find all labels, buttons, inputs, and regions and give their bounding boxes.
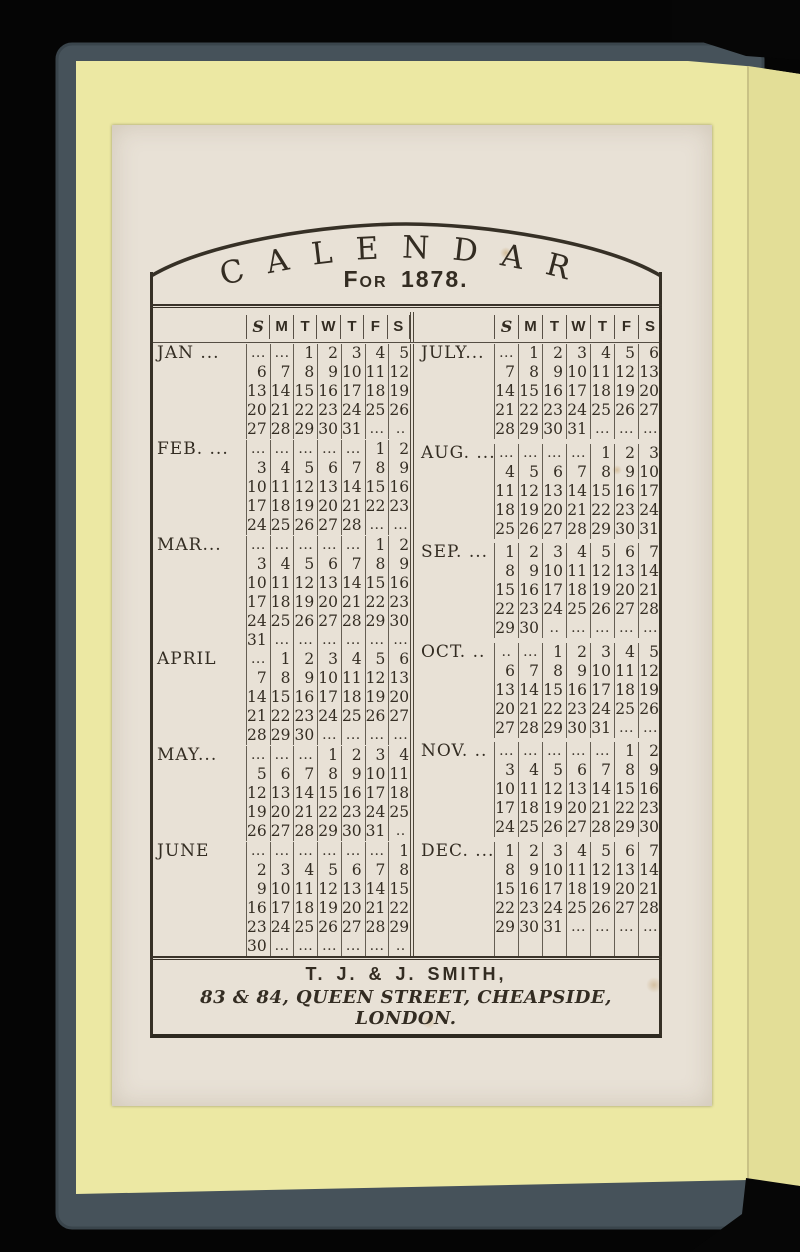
day-cell: 10 [590,662,614,681]
day-cell: 8 [494,562,518,581]
empty-day-cell: ... [590,619,614,638]
month-label-spacer [150,688,246,707]
photo-of-book-interior: CALENDAR For 1878. SMTWTFS SMTWTFS JAN .… [0,0,800,1252]
day-cell: 23 [293,707,317,726]
month-label-spacer [150,382,246,401]
day-cell: 30 [518,918,542,937]
day-cell: 31 [365,822,389,841]
day-cell: 7 [638,543,662,562]
month-block: DEC. ...12345678910111213141516171819202… [414,842,662,956]
day-cell: 29 [365,612,389,631]
day-cell: 1 [494,842,518,861]
day-cell: 8 [388,861,412,880]
day-cell: 20 [614,880,638,899]
day-cell: 6 [614,543,638,562]
day-cell: 16 [341,784,365,803]
day-cell: 22 [365,497,389,516]
empty-day-cell: ... [494,742,518,761]
day-cell: 6 [246,363,270,382]
day-cell: 26 [518,520,542,539]
day-cell: 6 [317,459,341,478]
day-cell: 13 [638,363,662,382]
month-label: MAR... [150,536,246,555]
day-cell: 23 [614,501,638,520]
day-cell: 16 [388,478,412,497]
month-label: FEB. ... [150,440,246,459]
day-cell: 10 [542,861,566,880]
months-column-right: JULY......123456789101112131415161718192… [414,344,662,956]
day-cell: 16 [518,581,542,600]
day-cell: 15 [494,581,518,600]
month-label-spacer [150,574,246,593]
day-cell: 24 [494,818,518,837]
day-cell: 26 [614,401,638,420]
empty-day-cell: .. [388,822,412,841]
empty-day-cell: ... [317,631,341,650]
card-subtitle: For 1878. [150,266,662,293]
day-cell: 1 [590,444,614,463]
blank-cell [590,937,614,956]
day-cell: 6 [638,344,662,363]
month-label-spacer [150,765,246,784]
dow-header-letter: M [518,315,542,339]
day-cell: 22 [270,707,294,726]
day-cell: 2 [246,861,270,880]
empty-day-cell: ... [270,746,294,765]
day-cell: 23 [518,600,542,619]
day-cell: 5 [293,459,317,478]
empty-day-cell: ... [614,420,638,439]
day-cell: 21 [246,707,270,726]
day-cell: 6 [494,662,518,681]
sunday-script-s: S [252,317,264,336]
endpaper-fore-edge [748,66,800,1186]
day-cell: 13 [494,681,518,700]
day-cell: 24 [270,918,294,937]
day-cell: 27 [246,420,270,439]
day-cell: 14 [518,681,542,700]
day-cell: 10 [494,780,518,799]
day-cell: 27 [270,822,294,841]
day-cell: 16 [518,880,542,899]
empty-day-cell: ... [270,536,294,555]
day-cell: 1 [614,742,638,761]
day-cell: 15 [317,784,341,803]
empty-day-cell: ... [614,619,638,638]
day-cell: 22 [494,600,518,619]
month-label: AUG. ... [414,444,494,463]
empty-day-cell: ... [341,842,365,861]
month-label-spacer [150,593,246,612]
day-cell: 29 [518,420,542,439]
empty-day-cell: ... [317,440,341,459]
day-cell: 13 [341,880,365,899]
dow-header-letter: T [590,315,614,339]
day-cell: 17 [317,688,341,707]
day-cell: 29 [317,822,341,841]
day-cell: 20 [614,581,638,600]
printer-imprint: T. J. & J. SMITH, 83 & 84, QUEEN STREET,… [150,964,662,1029]
day-cell: 10 [341,363,365,382]
day-cell: 14 [270,382,294,401]
day-cell: 5 [293,555,317,574]
empty-day-cell: ... [341,536,365,555]
day-cell: 25 [566,899,590,918]
month-label-spacer [414,880,494,899]
empty-day-cell: ... [388,631,412,650]
day-cell: 10 [542,562,566,581]
day-cell: 4 [270,555,294,574]
month-label-spacer [150,861,246,880]
day-cell: 15 [542,681,566,700]
empty-day-cell: ... [270,937,294,956]
month-label-spacer [150,880,246,899]
empty-day-cell: ... [590,742,614,761]
day-cell: 16 [614,482,638,501]
month-label-spacer [150,612,246,631]
day-cell: 7 [494,363,518,382]
month-label-spacer [150,803,246,822]
day-cell: 21 [638,880,662,899]
rule-above-footer [150,956,662,960]
dow-label-spacer [414,315,494,339]
month-label-spacer [150,822,246,841]
day-cell: 22 [542,700,566,719]
day-cell: 27 [614,899,638,918]
dow-header-letter: S [387,315,410,339]
day-cell: 29 [388,918,412,937]
day-cell: 19 [638,681,662,700]
month-label-spacer [150,363,246,382]
day-cell: 13 [614,861,638,880]
day-cell: 3 [246,459,270,478]
month-label-spacer [414,700,494,719]
empty-day-cell: ... [341,726,365,745]
day-cell: 26 [293,516,317,535]
day-cell: 16 [638,780,662,799]
month-label-spacer [414,401,494,420]
day-cell: 7 [341,459,365,478]
day-cell: 5 [518,463,542,482]
day-cell: 31 [566,420,590,439]
empty-day-cell: ... [246,650,270,669]
month-label-spacer [150,669,246,688]
day-cell: 15 [270,688,294,707]
day-cell: 28 [293,822,317,841]
empty-day-cell: ... [293,746,317,765]
day-cell: 28 [270,420,294,439]
month-label-spacer [150,497,246,516]
month-label-spacer [150,478,246,497]
day-cell: 23 [388,497,412,516]
day-cell: 17 [542,581,566,600]
dow-header-letter: M [269,315,292,339]
day-cell: 31 [341,420,365,439]
empty-day-cell: ... [590,918,614,937]
day-cell: 19 [614,382,638,401]
day-cell: 7 [518,662,542,681]
day-cell: 17 [494,799,518,818]
day-cell: 25 [566,600,590,619]
day-cell: 4 [293,861,317,880]
day-cell: 28 [494,420,518,439]
empty-day-cell: ... [542,742,566,761]
month-label-spacer [414,363,494,382]
empty-day-cell: ... [270,344,294,363]
dow-header-letter: T [542,315,566,339]
day-cell: 1 [317,746,341,765]
day-cell: 26 [590,600,614,619]
day-cell: 8 [317,765,341,784]
dow-header-letter: F [363,315,386,339]
day-cell: 3 [638,444,662,463]
day-cell: 17 [638,482,662,501]
day-cell: 23 [388,593,412,612]
day-cell: 14 [566,482,590,501]
day-cell: 30 [246,937,270,956]
day-cell: 12 [590,562,614,581]
empty-day-cell: .. [542,619,566,638]
day-cell: 20 [542,501,566,520]
day-cell: 21 [494,401,518,420]
day-cell: 14 [494,382,518,401]
month-label-spacer [414,899,494,918]
day-cell: 20 [388,688,412,707]
dow-header-letter: W [566,315,590,339]
day-of-week-header-row: SMTWTFS SMTWTFS [150,312,662,342]
month-label-spacer [414,619,494,638]
day-cell: 25 [518,818,542,837]
day-cell: 26 [542,818,566,837]
day-cell: 3 [566,344,590,363]
day-cell: 19 [590,880,614,899]
day-cell: 14 [365,880,389,899]
day-cell: 16 [293,688,317,707]
day-cell: 18 [341,688,365,707]
dow-header-letter: F [614,315,638,339]
day-cell: 9 [246,880,270,899]
day-cell: 1 [388,842,412,861]
empty-day-cell: ... [566,918,590,937]
day-cell: 28 [638,600,662,619]
day-cell: 31 [542,918,566,937]
empty-day-cell: ... [293,631,317,650]
day-cell: 22 [518,401,542,420]
day-cell: 23 [638,799,662,818]
month-label-spacer [414,482,494,501]
day-cell: 29 [270,726,294,745]
day-cell: 29 [590,520,614,539]
dow-header-left: SMTWTFS [150,312,414,342]
empty-day-cell: ... [246,746,270,765]
month-label-spacer [150,459,246,478]
blank-cell [566,937,590,956]
day-cell: 5 [388,344,412,363]
day-cell: 30 [388,612,412,631]
day-cell: 27 [388,707,412,726]
day-cell: 9 [614,463,638,482]
day-cell: 4 [566,842,590,861]
day-cell: 6 [566,761,590,780]
day-cell: 5 [590,543,614,562]
month-block: NOV. .................123456789101112131… [414,742,662,837]
day-cell: 18 [365,382,389,401]
day-cell: 28 [365,918,389,937]
day-cell: 24 [542,899,566,918]
day-cell: 13 [388,669,412,688]
day-cell: 19 [246,803,270,822]
day-cell: 19 [590,581,614,600]
day-cell: 17 [246,593,270,612]
day-cell: 20 [270,803,294,822]
empty-day-cell: ... [388,516,412,535]
empty-day-cell: .. [388,420,412,439]
day-cell: 21 [293,803,317,822]
day-cell: 30 [518,619,542,638]
day-cell: 15 [590,482,614,501]
day-cell: 28 [341,516,365,535]
day-cell: 9 [293,669,317,688]
day-cell: 25 [341,707,365,726]
day-cell: 12 [638,662,662,681]
day-cell: 2 [317,344,341,363]
day-cell: 27 [494,719,518,738]
day-cell: 2 [293,650,317,669]
empty-day-cell: ... [638,619,662,638]
day-cell: 7 [293,765,317,784]
empty-day-cell: ... [542,444,566,463]
day-cell: 11 [590,363,614,382]
day-cell: 20 [566,799,590,818]
months-table: JAN .........123456789101112131415161718… [150,344,662,956]
day-cell: 15 [365,574,389,593]
empty-day-cell: ... [638,420,662,439]
day-cell: 8 [293,363,317,382]
empty-day-cell: .. [388,937,412,956]
day-cell: 30 [293,726,317,745]
day-cell: 27 [566,818,590,837]
day-cell: 13 [317,478,341,497]
day-cell: 27 [317,612,341,631]
empty-day-cell: ... [341,440,365,459]
day-cell: 20 [638,382,662,401]
day-cell: 5 [365,650,389,669]
day-cell: 7 [566,463,590,482]
empty-day-cell: ... [566,742,590,761]
day-cell: 24 [246,516,270,535]
day-cell: 1 [518,344,542,363]
day-cell: 3 [494,761,518,780]
day-cell: 26 [365,707,389,726]
day-cell: 22 [293,401,317,420]
day-cell: 7 [638,842,662,861]
day-cell: 25 [270,516,294,535]
dow-header-letter: T [293,315,316,339]
day-cell: 11 [518,780,542,799]
day-cell: 27 [317,516,341,535]
day-cell: 2 [518,842,542,861]
day-cell: 19 [293,593,317,612]
month-label-spacer [414,520,494,539]
day-cell: 15 [388,880,412,899]
day-cell: 4 [494,463,518,482]
day-cell: 15 [365,478,389,497]
day-cell: 23 [317,401,341,420]
day-cell: 14 [638,861,662,880]
day-cell: 30 [542,420,566,439]
day-cell: 28 [638,899,662,918]
day-cell: 19 [542,799,566,818]
day-cell: 28 [246,726,270,745]
rule-under-headers [150,342,662,343]
day-cell: 2 [341,746,365,765]
day-cell: 31 [590,719,614,738]
day-cell: 22 [365,593,389,612]
day-cell: 28 [518,719,542,738]
day-cell: 18 [293,899,317,918]
day-cell: 22 [494,899,518,918]
day-cell: 1 [494,543,518,562]
month-label-spacer [150,516,246,535]
month-label-spacer [150,918,246,937]
empty-day-cell: ... [365,420,389,439]
month-label-spacer [150,784,246,803]
day-cell: 18 [270,497,294,516]
day-cell: 16 [317,382,341,401]
day-cell: 13 [542,482,566,501]
month-label: NOV. .. [414,742,494,761]
day-cell: 30 [317,420,341,439]
day-cell: 19 [518,501,542,520]
day-cell: 6 [341,861,365,880]
day-cell: 4 [365,344,389,363]
blank-cell [518,937,542,956]
day-cell: 10 [246,574,270,593]
day-cell: 8 [590,463,614,482]
month-label-spacer [150,555,246,574]
day-cell: 1 [365,536,389,555]
month-block: APRIL...12345678910111213141516171819202… [150,650,410,745]
day-cell: 12 [614,363,638,382]
day-cell: 8 [518,363,542,382]
day-cell: 24 [566,401,590,420]
month-label-spacer [414,761,494,780]
day-cell: 3 [341,344,365,363]
day-cell: 18 [614,681,638,700]
sunday-script-s: S [501,317,513,336]
day-cell: 7 [341,555,365,574]
month-label-spacer [414,501,494,520]
day-cell: 24 [638,501,662,520]
day-cell: 1 [270,650,294,669]
empty-day-cell: ... [590,420,614,439]
paste-down-page: CALENDAR For 1878. SMTWTFS SMTWTFS JAN .… [112,125,712,1106]
day-cell: 25 [614,700,638,719]
day-cell: 8 [494,861,518,880]
day-cell: 27 [638,401,662,420]
day-cell: 3 [542,842,566,861]
day-cell: 9 [388,459,412,478]
day-cell: 3 [365,746,389,765]
day-cell: 4 [388,746,412,765]
month-label: DEC. ... [414,842,494,861]
day-cell: 10 [317,669,341,688]
day-cell: 9 [518,861,542,880]
month-label-spacer [414,562,494,581]
month-block: AUG. ...............12345678910111213141… [414,444,662,539]
day-cell: 30 [341,822,365,841]
day-cell: 24 [590,700,614,719]
